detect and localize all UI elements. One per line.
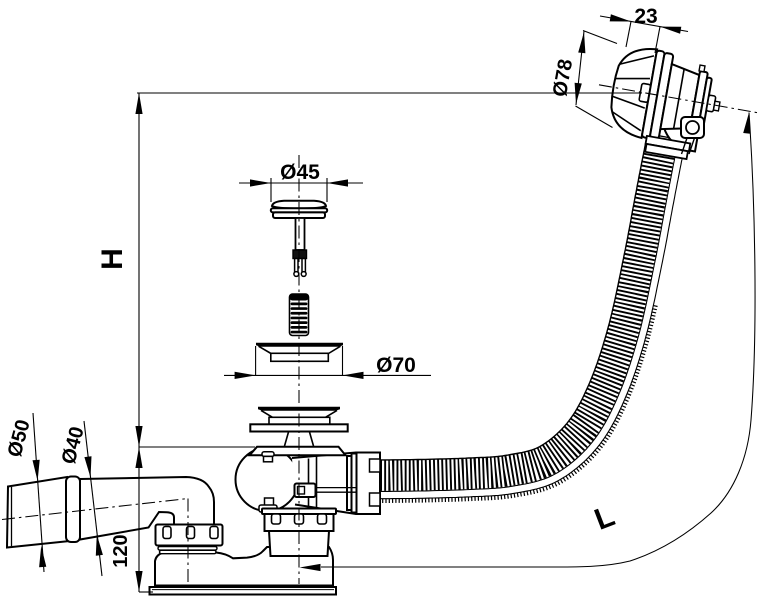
svg-text:120: 120 <box>110 534 132 567</box>
svg-text:Ø45: Ø45 <box>280 161 320 184</box>
svg-text:H: H <box>96 248 129 270</box>
svg-text:23: 23 <box>634 5 657 28</box>
svg-text:Ø70: Ø70 <box>376 354 416 377</box>
